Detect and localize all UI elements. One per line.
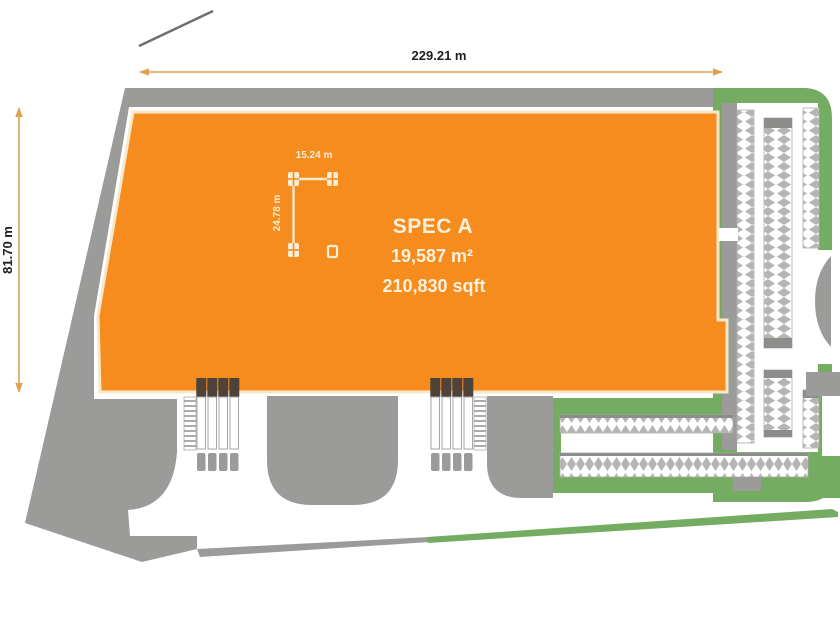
parking-row-hatch: [803, 108, 819, 248]
site-plan-page: SPEC A 19,587 m² 210,830 sqft 15.24 m 24…: [0, 0, 840, 630]
parking-end-island: [764, 430, 792, 437]
column-marker: [327, 172, 338, 186]
dock-bay: [196, 378, 206, 471]
parking-row-hatch: [737, 110, 754, 443]
building-side-gap: [719, 228, 738, 241]
parking-row-curb: [560, 453, 808, 456]
road-right-vertical-strip: [722, 103, 737, 450]
landscape-connector: [552, 398, 561, 493]
parking-end-island: [764, 338, 792, 348]
building-name-label: SPEC A: [393, 215, 473, 238]
building-area-imperial-label: 210,830 sqft: [382, 276, 485, 296]
dock-bay: [207, 378, 217, 471]
building-area-metric-label: 19,587 m²: [391, 246, 473, 266]
column-marker: [288, 172, 299, 186]
road-top-strip: [125, 88, 713, 107]
landscape-strip-upper: [552, 398, 724, 415]
grid-width-label: 15.24 m: [296, 150, 333, 161]
white-gap-right: [822, 396, 840, 456]
parking-row-curb: [560, 415, 733, 418]
dock-bay: [218, 378, 228, 471]
grid-depth-label: 24.78 m: [272, 195, 283, 232]
parking-row-hatch: [764, 128, 792, 338]
parking-end-island: [764, 370, 792, 378]
column-marker: [288, 243, 299, 257]
overall-width-label: 229.21 m: [412, 48, 467, 63]
dock-bay: [441, 378, 451, 471]
dock-stairs: [474, 397, 486, 450]
landscape-strip-lower: [552, 475, 808, 493]
landscape-right-edge: [820, 456, 840, 498]
site-plan-drawing: SPEC A 19,587 m² 210,830 sqft 15.24 m 24…: [0, 0, 840, 630]
building: SPEC A 19,587 m² 210,830 sqft: [98, 112, 738, 392]
road-exit-stub: [806, 372, 840, 396]
island-center: [267, 396, 398, 505]
dock-bay: [452, 378, 462, 471]
parking-row-hatch: [764, 378, 792, 430]
parking-row-hatch: [560, 418, 733, 433]
overall-depth-label: 81.70 m: [0, 226, 15, 274]
dock-bay: [229, 378, 239, 471]
parking-end-island: [764, 118, 792, 128]
crossing-pad: [733, 477, 761, 491]
parking-row-hatch: [803, 398, 819, 448]
dock-bay: [430, 378, 440, 471]
parking-row-hatch: [560, 456, 808, 477]
dock-stairs: [184, 397, 196, 450]
dock-bay: [463, 378, 473, 471]
island-right: [487, 396, 553, 498]
